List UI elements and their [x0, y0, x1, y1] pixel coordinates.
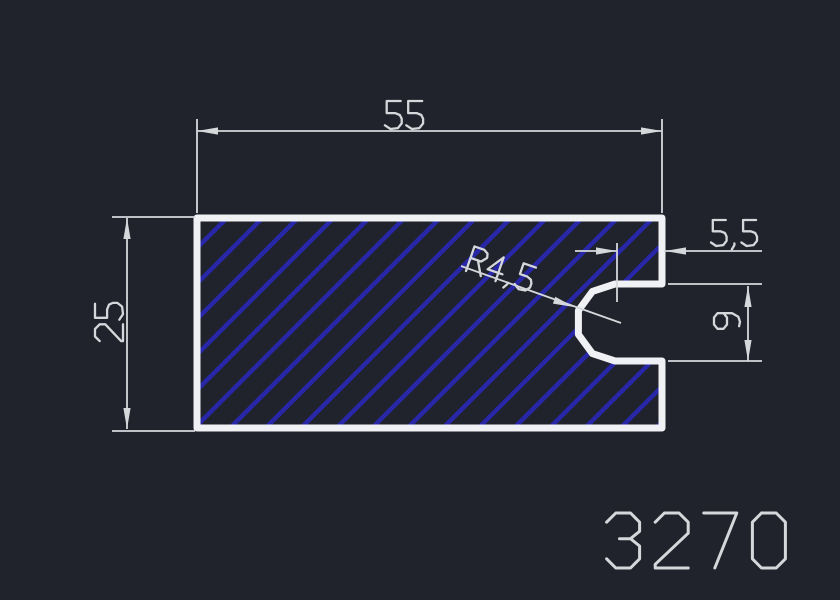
extension-lines [197, 119, 662, 213]
arrowhead-bottom [744, 340, 751, 361]
dim-overall-width[interactable] [197, 101, 662, 213]
dim-groove-offset-value[interactable] [711, 220, 757, 250]
part-number-label[interactable] [607, 513, 786, 568]
arrowhead-right [641, 127, 662, 134]
dim-overall-height[interactable] [95, 217, 195, 431]
arrowhead-bottom [123, 408, 130, 429]
dim-groove-height[interactable] [668, 284, 762, 361]
arrowhead-left [665, 247, 686, 254]
dim-overall-width-value[interactable] [385, 101, 423, 129]
arrowhead-top [123, 218, 130, 239]
arrowhead-right [596, 247, 617, 254]
dim-overall-height-value[interactable] [95, 303, 123, 341]
drawing-canvas [0, 0, 840, 600]
arrowhead-left [197, 127, 218, 134]
cad-viewport [0, 0, 840, 600]
dim-groove-height-value[interactable] [714, 313, 740, 329]
extension-lines [112, 217, 195, 431]
arrowhead-top [744, 286, 751, 307]
